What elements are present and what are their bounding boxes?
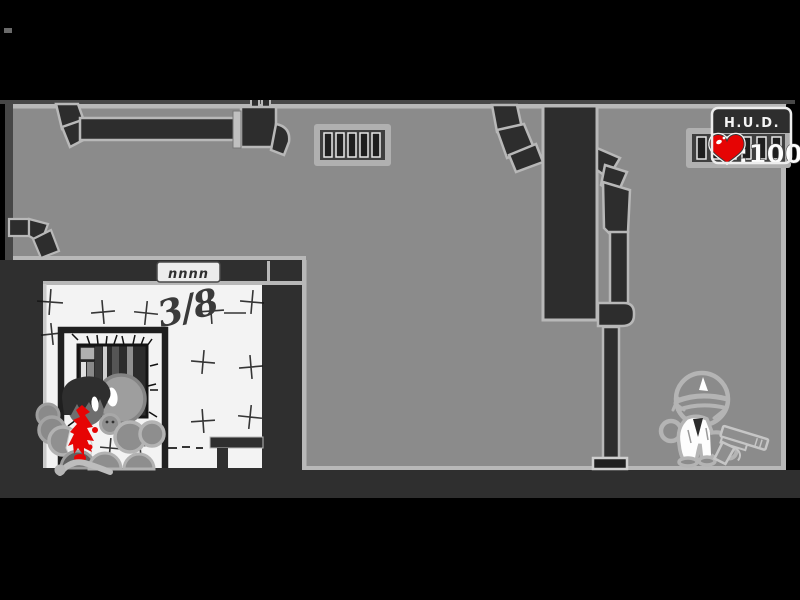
ceiling-border (13, 104, 784, 109)
lower-left-wall-border (302, 260, 307, 470)
upper-ledge-border (13, 256, 306, 261)
floor-slab (0, 470, 800, 498)
bottom-black-frame (0, 498, 800, 600)
door-vent-grille: nnnn (157, 262, 220, 282)
frame-notch (4, 28, 12, 33)
ceiling-shadow-strip (0, 100, 795, 105)
left-black-frame (0, 104, 5, 260)
closet-lintel-seam (267, 261, 270, 281)
top-black-frame (0, 0, 800, 100)
slumped-hand (55, 465, 66, 476)
game-viewport[interactable]: nnnn 3/8 (0, 0, 800, 600)
game-stage: nnnn 3/8 (0, 0, 800, 600)
vent-grille-marks: nnnn (168, 267, 209, 282)
wall-vent-grill (314, 124, 391, 166)
hud-title-text: H.U.D. (724, 116, 780, 131)
agent-foot (679, 458, 697, 466)
floor-border (306, 466, 784, 471)
dark-column (543, 106, 597, 320)
